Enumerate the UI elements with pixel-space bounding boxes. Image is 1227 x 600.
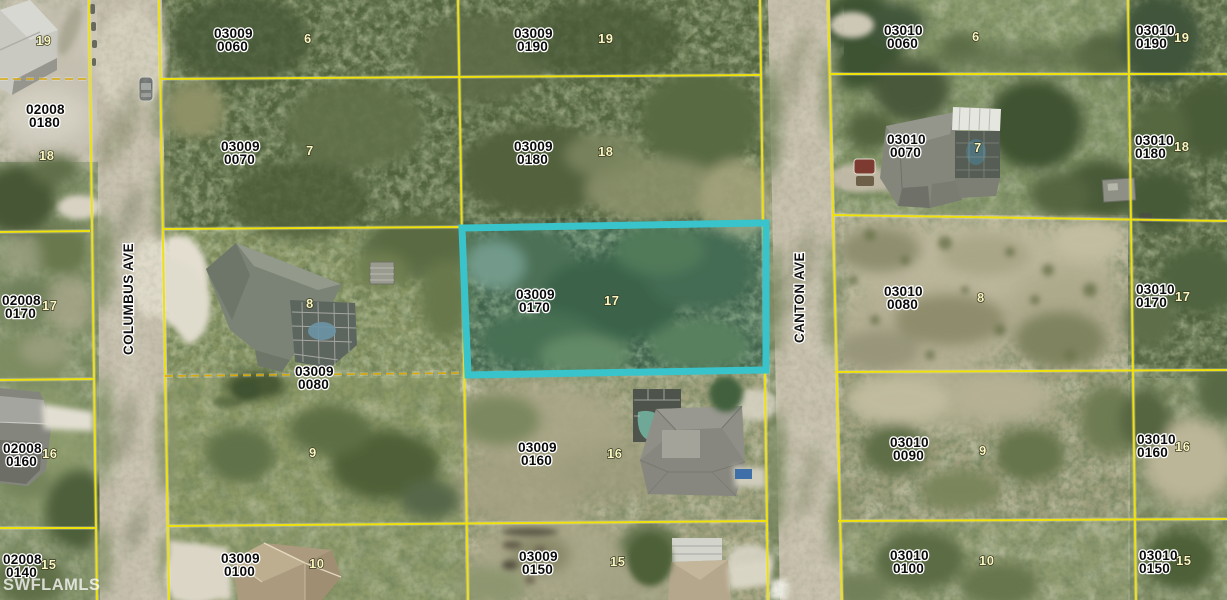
svg-text:0150: 0150	[1139, 561, 1170, 576]
svg-text:0170: 0170	[5, 306, 36, 321]
svg-text:7: 7	[974, 140, 982, 155]
svg-text:8: 8	[977, 290, 985, 305]
svg-text:15: 15	[610, 554, 625, 569]
svg-text:7: 7	[306, 143, 314, 158]
svg-text:17: 17	[42, 298, 57, 313]
svg-text:0060: 0060	[217, 39, 248, 54]
svg-text:18: 18	[39, 148, 54, 163]
svg-text:0170: 0170	[519, 300, 550, 315]
svg-text:0180: 0180	[29, 115, 60, 130]
svg-text:0180: 0180	[517, 152, 548, 167]
svg-text:0160: 0160	[521, 453, 552, 468]
svg-text:0190: 0190	[1136, 36, 1167, 51]
svg-text:18: 18	[1174, 139, 1189, 154]
svg-text:10: 10	[979, 553, 994, 568]
svg-text:19: 19	[1174, 30, 1189, 45]
svg-text:6: 6	[304, 31, 312, 46]
svg-text:16: 16	[607, 446, 622, 461]
svg-text:0080: 0080	[887, 297, 918, 312]
svg-text:8: 8	[306, 296, 314, 311]
svg-text:16: 16	[1175, 439, 1190, 454]
svg-text:0100: 0100	[224, 564, 255, 579]
svg-text:0070: 0070	[224, 152, 255, 167]
svg-text:0170: 0170	[1136, 295, 1167, 310]
svg-text:CANTON AVE: CANTON AVE	[792, 252, 807, 343]
svg-text:0080: 0080	[298, 377, 329, 392]
svg-text:0070: 0070	[890, 145, 921, 160]
svg-text:0160: 0160	[1137, 445, 1168, 460]
svg-text:0100: 0100	[893, 561, 924, 576]
svg-text:9: 9	[309, 445, 317, 460]
svg-text:COLUMBUS AVE: COLUMBUS AVE	[121, 243, 136, 355]
svg-text:15: 15	[1176, 553, 1191, 568]
svg-text:16: 16	[42, 446, 57, 461]
svg-text:19: 19	[598, 31, 613, 46]
svg-text:17: 17	[604, 293, 619, 308]
svg-text:15: 15	[41, 557, 56, 572]
svg-text:18: 18	[598, 144, 613, 159]
svg-text:0150: 0150	[522, 562, 553, 577]
svg-text:19: 19	[36, 33, 51, 48]
svg-text:0190: 0190	[517, 39, 548, 54]
svg-text:10: 10	[309, 556, 324, 571]
svg-text:0060: 0060	[887, 36, 918, 51]
svg-text:0180: 0180	[1135, 146, 1166, 161]
svg-text:SWFLAMLS: SWFLAMLS	[3, 576, 100, 594]
svg-text:9: 9	[979, 443, 987, 458]
svg-text:17: 17	[1175, 289, 1190, 304]
svg-text:0160: 0160	[6, 454, 37, 469]
svg-text:0090: 0090	[893, 448, 924, 463]
svg-text:6: 6	[972, 29, 980, 44]
